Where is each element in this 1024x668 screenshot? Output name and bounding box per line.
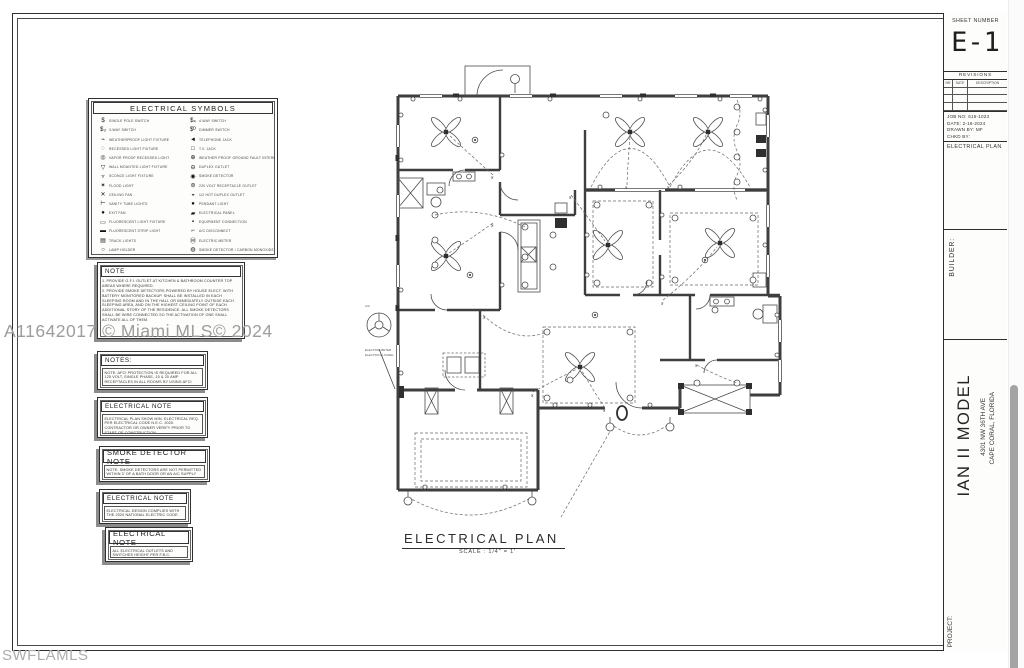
floor-plan-drawing: SS SS SS SS SS A/C (365, 55, 790, 535)
legend-symbol-icon: ▰ (187, 210, 199, 217)
legend-row: ●PENDANT LIGHT (187, 200, 275, 209)
legend-row: ▽WALL MOUNTED LIGHT FIXTURE (97, 163, 183, 172)
smoke-detectors (467, 137, 708, 318)
legend-symbol-icon: ◄ (187, 137, 199, 143)
legend-row: ✕CEILING FAN (97, 190, 183, 199)
legend-row: ▿SCONCE LIGHT FIXTURE (97, 172, 183, 181)
exterior-walls (398, 66, 780, 490)
legend-row: ◄TELEPHONE JACK (187, 135, 275, 144)
electrical-symbols-legend: ELECTRICAL SYMBOLS $SINGLE POLE SWITCH$₃… (88, 98, 278, 258)
project-name: IAN II MODEL (955, 374, 974, 497)
note-box: NOTES:NOTE: AFCI PROTECTION IS REQUIRED … (97, 351, 208, 390)
swfl-watermark: SWFLAMLS (2, 647, 89, 664)
legend-label: EQUIPMENT CONNECTION (199, 220, 247, 224)
legend-symbol-icon: $₄ (187, 118, 199, 124)
note-body: ALL ELECTRICAL OUTLETS AND SWITCHES HEIG… (110, 546, 188, 558)
svg-text:A/C: A/C (365, 304, 371, 308)
legend-row: ▬FLUORESCENT STRIP LIGHT (97, 227, 183, 236)
project-label: PROJECT: (947, 616, 954, 647)
legend-title-bar: ELECTRICAL SYMBOLS (93, 102, 273, 114)
legend-symbol-icon: ⌐ (187, 228, 199, 234)
svg-text:S: S (625, 185, 628, 190)
legend-label: ELECTRICAL PANEL (199, 211, 235, 215)
note-title: NOTE (101, 266, 241, 277)
legend-symbol-icon: ⌁ (97, 136, 109, 143)
legend-row: $SINGLE POLE SWITCH (97, 117, 183, 126)
legend-symbol-icon: ● (97, 210, 109, 216)
legend-symbol-icon: ⊜ (187, 182, 199, 189)
job-info-section: JOB NO: 615-1023 DATE: 2-16-2024 DRAWN B… (944, 112, 1007, 142)
svg-text:S: S (603, 408, 606, 413)
note-box: ELECTRICAL NOTEELECTRICAL DESIGN COMPLIE… (99, 489, 191, 524)
legend-row: ⊕WEATHER PROOF GROUND FAULT INTERRUPT (187, 154, 275, 163)
legend-row: ⓂELECTRIC METER (187, 236, 275, 245)
legend-symbol-icon: ▭ (97, 219, 109, 226)
legend-symbol-icon: ◌ (97, 146, 109, 152)
legend-row: ✶FLOOD LIGHT (97, 181, 183, 190)
window-x-boxes (398, 178, 513, 414)
laundry-appliances (443, 353, 485, 377)
legend-label: TRACK LIGHTS (109, 239, 136, 243)
legend-symbol-icon: □ (187, 146, 199, 152)
revision-col-nr: NR (944, 80, 953, 87)
legend-label: A/C DISCONNECT (199, 229, 231, 233)
legend-symbol-icon: ▽ (97, 164, 109, 171)
note-title: NOTES: (101, 355, 204, 366)
wall-outlets (399, 97, 779, 489)
legend-symbol-icon: ✕ (97, 191, 109, 198)
legend-row: ▤TRACK LIGHTS (97, 236, 183, 245)
note-title: ELECTRICAL NOTE (103, 493, 187, 504)
legend-label: VANITY TUBE LIGHTS (109, 202, 148, 206)
legend-symbol-icon: $₃ (97, 127, 109, 133)
legend-label: EXIT FAN (109, 211, 126, 215)
legend-row: ⊜220 VOLT RECEPTACLE OUTLET (187, 181, 275, 190)
legend-row: $₄4-WAY SWITCH (187, 117, 275, 126)
job-date: DATE: 2-16-2024 (947, 121, 1007, 128)
sheet-number-label: SHEET NUMBER (944, 18, 1007, 24)
legend-symbol-icon: ▤ (97, 237, 109, 244)
legend-symbol-icon: ● (187, 201, 199, 207)
revision-row-empty (944, 103, 1007, 111)
note-box: ELECTRICAL NOTEELECTRICAL PLAN SHOW MIN.… (97, 397, 208, 438)
legend-label: VAPOR PROOF RECESSED LIGHT (109, 156, 169, 160)
project-address-line1: 4301 NW 36TH AVE (980, 398, 987, 456)
svg-text:S: S (661, 301, 664, 306)
legend-row: ⌁WEATHERPROOF LIGHT FIXTURE (97, 135, 183, 144)
legend-label: CEILING FAN (109, 193, 132, 197)
legend-symbol-icon: ◍ (187, 246, 199, 253)
legend-symbol-icon: ▿ (97, 173, 109, 180)
legend-label: T.V. JACK (199, 147, 216, 151)
revision-col-date: DATE (953, 80, 968, 87)
legend-row: ◉SMOKE DETECTOR (187, 172, 275, 181)
mls-watermark: A11642017 © Miami MLS© 2024 (4, 321, 273, 342)
revisions-column-row: NR DATE DESCRIPTION (944, 80, 1007, 88)
legend-row: ◍SMOKE DETECTOR / CARBON MONOXIDE COMBO (187, 245, 275, 254)
legend-column-left: $SINGLE POLE SWITCH$₃3-WAY SWITCH⌁WEATHE… (97, 117, 183, 254)
legend-label: RECESSED LIGHT FIXTURE (109, 147, 158, 151)
legend-label: SMOKE DETECTOR (199, 174, 234, 178)
legend-label: FLOOD LIGHT (109, 184, 134, 188)
builder-section: BUILDER: (944, 230, 1007, 340)
note-box: SMOKE DETECTOR NOTENOTE: SMOKE DETECTORS… (99, 446, 210, 482)
sheet-number-value: E-1 (944, 27, 1007, 58)
legend-label: WALL MOUNTED LIGHT FIXTURE (109, 165, 168, 169)
legend-row: $₃3-WAY SWITCH (97, 126, 183, 135)
legend-symbol-icon: ⊖ (187, 164, 199, 171)
legend-row: ▰ELECTRICAL PANEL (187, 209, 275, 218)
legend-label: DIMMER SWITCH (199, 128, 230, 132)
legend-symbol-icon: ▬ (97, 228, 109, 234)
revisions-header: REVISIONS (944, 72, 1007, 80)
revision-row-empty (944, 95, 1007, 103)
legend-label: 1/2 HOT DUPLEX OUTLET (199, 193, 245, 197)
legend-label: WEATHERPROOF LIGHT FIXTURE (109, 138, 169, 142)
svg-text:ELECTRICAL PANEL: ELECTRICAL PANEL (365, 353, 394, 357)
legend-symbol-icon: ◒ (187, 192, 199, 198)
legend-label: 220 VOLT RECEPTACLE OUTLET (199, 184, 257, 188)
legend-label: SMOKE DETECTOR / CARBON MONOXIDE COMBO (199, 248, 275, 252)
legend-label: FLUORESCENT LIGHT FIXTURE (109, 220, 166, 224)
sheet-title-section: ELECTRICAL PLAN (944, 142, 1007, 230)
legend-label: DUPLEX OUTLET (199, 165, 230, 169)
checked-by: CHKD BY: (947, 134, 1007, 141)
legend-label: 3-WAY SWITCH (109, 128, 136, 132)
legend-symbol-icon: Ⓜ (187, 236, 199, 245)
job-number: JOB NO: 615-1023 (947, 114, 1007, 121)
tray-ceilings (415, 201, 758, 487)
revision-col-description: DESCRIPTION (968, 80, 1007, 87)
legend-symbol-icon: ⊕ (187, 154, 199, 161)
plan-title: ELECTRICAL PLAN (402, 531, 565, 549)
revision-row-empty (944, 88, 1007, 96)
legend-row: ●EXIT FAN (97, 209, 183, 218)
svg-text:S: S (531, 393, 534, 398)
legend-symbol-icon: ◉ (187, 173, 199, 180)
sheet-number-section: SHEET NUMBER E-1 (944, 13, 1007, 72)
legend-label: FLUORESCENT STRIP LIGHT (109, 229, 161, 233)
legend-row: ⊢VANITY TUBE LIGHTS (97, 200, 183, 209)
legend-symbol-icon: ⊢ (97, 200, 109, 207)
legend-row: ◎VAPOR PROOF RECESSED LIGHT (97, 154, 183, 163)
note-body: ELECTRICAL DESIGN COMPLIES WITH THE 2020… (104, 506, 186, 520)
revisions-section: REVISIONS NR DATE DESCRIPTION (944, 72, 1007, 112)
note-title: ELECTRICAL NOTE (109, 531, 189, 544)
legend-symbol-icon: ◎ (97, 154, 109, 161)
entry-porch (678, 383, 752, 415)
legend-row: ⊖DUPLEX OUTLET (187, 163, 275, 172)
legend-symbol-icon: $ (97, 118, 109, 124)
project-address-line2: CAPE CORAL, FLORIDA (989, 392, 996, 464)
note-body: NOTE: SMOKE DETECTORS ARE NOT PERMITTED … (104, 465, 205, 478)
note-title: ELECTRICAL NOTE (101, 401, 204, 412)
legend-label: SINGLE POLE SWITCH (109, 119, 149, 123)
legend-label: TELEPHONE JACK (199, 138, 232, 142)
title-block: SHEET NUMBER E-1 REVISIONS NR DATE DESCR… (943, 13, 1007, 651)
legend-title: ELECTRICAL SYMBOLS (130, 104, 236, 113)
legend-row: ⌐A/C DISCONNECT (187, 227, 275, 236)
kitchen-island (518, 203, 567, 292)
plan-scale: SCALE : 1/4" = 1' (459, 549, 516, 555)
legend-row: ▭FLUORESCENT LIGHT FIXTURE (97, 218, 183, 227)
svg-text:S: S (491, 175, 494, 180)
legend-label: SCONCE LIGHT FIXTURE (109, 174, 154, 178)
legend-label: ELECTRIC METER (199, 239, 231, 243)
builder-label: BUILDER: (949, 238, 956, 277)
legend-column-right: $₄4-WAY SWITCH$ᴰDIMMER SWITCH◄TELEPHONE … (187, 117, 275, 254)
scrollbar-thumb[interactable] (1010, 385, 1018, 668)
legend-row: ◒1/2 HOT DUPLEX OUTLET (187, 190, 275, 199)
svg-text:ELECTRIC METER: ELECTRIC METER (365, 348, 392, 352)
note-title: SMOKE DETECTOR NOTE (103, 450, 206, 463)
note-box: ELECTRICAL NOTEALL ELECTRICAL OUTLETS AN… (105, 527, 193, 562)
legend-label: PENDANT LIGHT (199, 202, 229, 206)
legend-symbol-icon: ✶ (97, 182, 109, 189)
project-section: PROJECT: IAN II MODEL 4301 NW 36TH AVE C… (944, 340, 1007, 651)
legend-symbol-icon: $ᴰ (187, 127, 199, 133)
legend-row: □T.V. JACK (187, 145, 275, 154)
sheet-title: ELECTRICAL PLAN (947, 144, 1007, 150)
legend-row: ▪EQUIPMENT CONNECTION (187, 218, 275, 227)
legend-row: ◌RECESSED LIGHT FIXTURE (97, 145, 183, 154)
legend-label: LAMP HOLDER (109, 248, 135, 252)
drawn-by: DRAWN BY: MF (947, 127, 1007, 134)
note-body: NOTE: AFCI PROTECTION IS REQUIRED FOR AL… (102, 368, 203, 386)
legend-label: WEATHER PROOF GROUND FAULT INTERRUPT (199, 156, 275, 160)
legend-symbol-icon: ▪ (187, 219, 199, 225)
legend-row: $ᴰDIMMER SWITCH (187, 126, 275, 135)
legend-symbol-icon: ○ (97, 247, 109, 253)
legend-row: ○LAMP HOLDER (97, 245, 183, 254)
legend-label: 4-WAY SWITCH (199, 119, 226, 123)
note-body: ELECTRICAL PLAN SHOW MIN. ELECTRICAL REQ… (102, 414, 203, 434)
